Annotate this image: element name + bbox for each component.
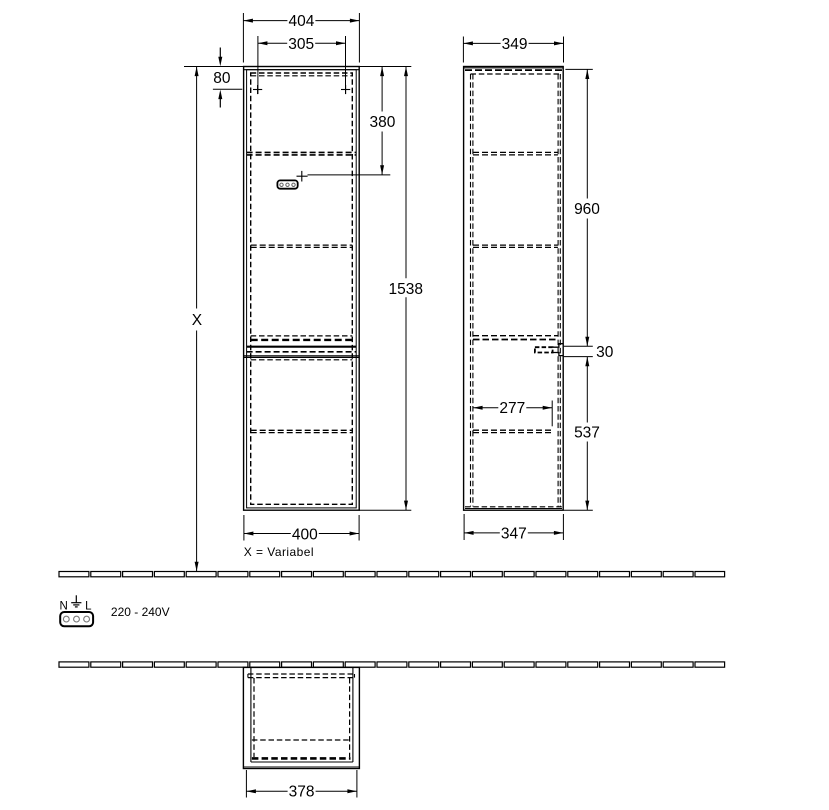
svg-text:378: 378 (289, 784, 315, 801)
svg-text:277: 277 (499, 400, 525, 417)
svg-text:220 - 240V: 220 - 240V (111, 605, 170, 619)
svg-text:X = Variabel: X = Variabel (244, 545, 314, 559)
svg-text:380: 380 (369, 114, 395, 131)
svg-text:L: L (85, 600, 92, 612)
svg-text:537: 537 (574, 425, 600, 442)
svg-text:80: 80 (213, 70, 231, 87)
svg-text:305: 305 (288, 36, 314, 53)
svg-text:960: 960 (574, 201, 600, 218)
svg-text:X: X (192, 312, 203, 329)
svg-text:1538: 1538 (389, 281, 423, 298)
svg-text:N: N (59, 600, 67, 612)
svg-text:404: 404 (288, 13, 314, 30)
svg-text:400: 400 (292, 526, 318, 543)
svg-text:347: 347 (501, 526, 527, 543)
svg-text:30: 30 (596, 344, 614, 361)
svg-text:349: 349 (502, 36, 528, 53)
